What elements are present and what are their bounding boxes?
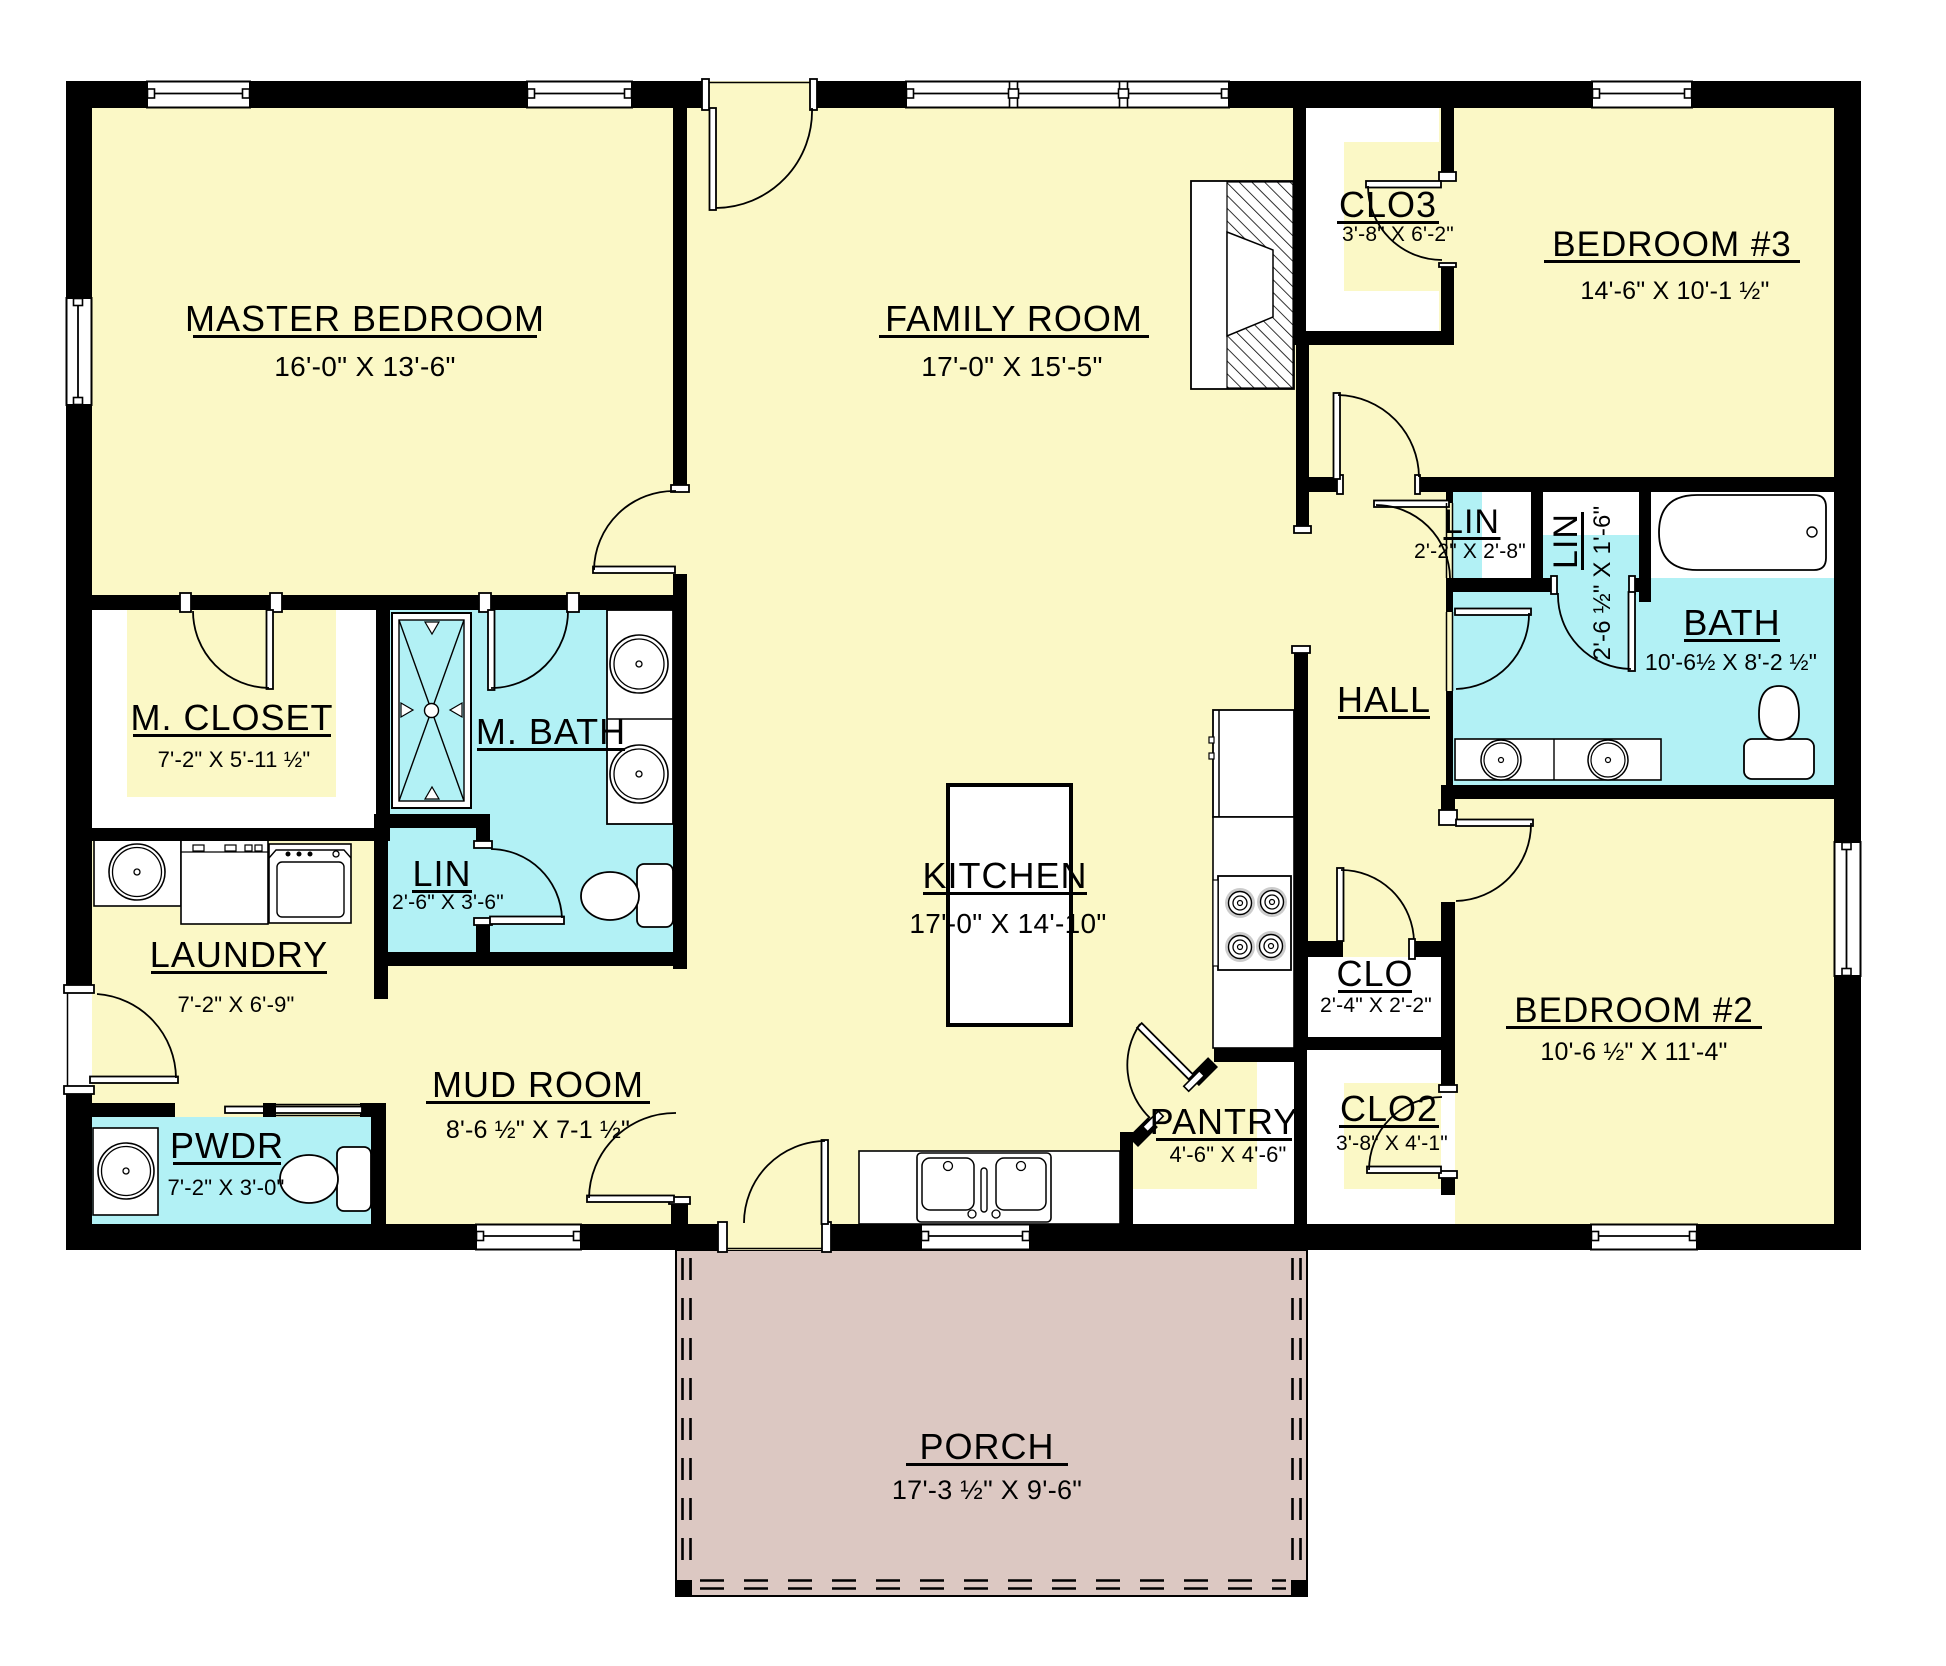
svg-text:LAUNDRY: LAUNDRY	[150, 934, 328, 975]
svg-text:FAMILY ROOM: FAMILY ROOM	[885, 298, 1143, 339]
svg-text:PANTRY: PANTRY	[1150, 1101, 1299, 1142]
svg-text:10'-6 ½" X 11'-4": 10'-6 ½" X 11'-4"	[1540, 1038, 1727, 1066]
svg-text:3'-8" X 6'-2": 3'-8" X 6'-2"	[1342, 223, 1454, 246]
svg-text:7'-2" X 6'-9": 7'-2" X 6'-9"	[177, 992, 294, 1017]
svg-text:2'-6" X 3'-6": 2'-6" X 3'-6"	[392, 891, 504, 914]
svg-text:17'-0" X 15'-5": 17'-0" X 15'-5"	[921, 351, 1102, 382]
svg-text:2'-4" X 2'-2": 2'-4" X 2'-2"	[1320, 994, 1432, 1017]
svg-text:MUD ROOM: MUD ROOM	[432, 1064, 644, 1105]
svg-text:LIN: LIN	[1547, 513, 1585, 569]
svg-text:8'-6 ½" X 7-1 ½": 8'-6 ½" X 7-1 ½"	[446, 1116, 630, 1144]
svg-text:M. CLOSET: M. CLOSET	[130, 697, 333, 738]
svg-text:PWDR: PWDR	[170, 1125, 284, 1166]
svg-text:7'-2" X 5'-11 ½": 7'-2" X 5'-11 ½"	[158, 747, 311, 772]
svg-text:10'-6½ X 8'-2 ½": 10'-6½ X 8'-2 ½"	[1645, 649, 1817, 675]
svg-text:BEDROOM #3: BEDROOM #3	[1552, 225, 1792, 264]
svg-text:BATH: BATH	[1683, 602, 1780, 643]
svg-text:CLO3: CLO3	[1339, 184, 1437, 225]
svg-text:14'-6" X 10'-1 ½": 14'-6" X 10'-1 ½"	[1580, 277, 1769, 305]
svg-text:17'-0" X 14'-10": 17'-0" X 14'-10"	[909, 908, 1106, 939]
svg-text:M. BATH: M. BATH	[476, 711, 626, 752]
svg-text:7'-2" X 3'-0": 7'-2" X 3'-0"	[167, 1175, 284, 1200]
svg-text:BEDROOM #2: BEDROOM #2	[1514, 991, 1754, 1030]
svg-text:LIN: LIN	[1444, 503, 1500, 541]
svg-text:17'-3 ½" X 9'-6": 17'-3 ½" X 9'-6"	[892, 1475, 1082, 1505]
svg-text:PORCH: PORCH	[919, 1426, 1054, 1467]
svg-text:HALL: HALL	[1337, 679, 1431, 720]
svg-text:2'-2" X 2'-8": 2'-2" X 2'-8"	[1414, 540, 1526, 563]
svg-text:KITCHEN: KITCHEN	[922, 855, 1087, 896]
svg-text:3'-8" X 4'-1": 3'-8" X 4'-1"	[1336, 1132, 1448, 1155]
svg-text:2'-6 ½" X 1'-6": 2'-6 ½" X 1'-6"	[1589, 506, 1616, 661]
svg-text:CLO2: CLO2	[1340, 1088, 1438, 1129]
svg-text:4'-6" X 4'-6": 4'-6" X 4'-6"	[1169, 1142, 1286, 1167]
svg-text:MASTER BEDROOM: MASTER BEDROOM	[185, 298, 545, 339]
svg-text:CLO: CLO	[1336, 953, 1413, 994]
svg-text:16'-0" X 13'-6": 16'-0" X 13'-6"	[274, 351, 455, 382]
svg-text:LIN: LIN	[412, 853, 471, 894]
